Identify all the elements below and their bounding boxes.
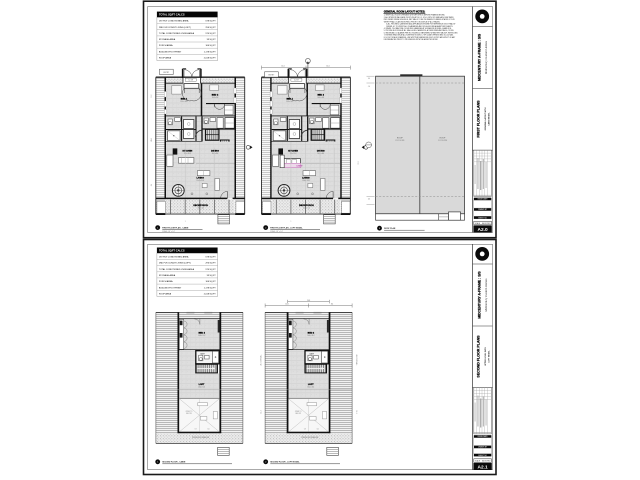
svg-text:BUILDING FOOTPRINT: BUILDING FOOTPRINT <box>159 287 182 289</box>
svg-text:2,018 SQ FT: 2,018 SQ FT <box>204 294 217 296</box>
svg-text:LOFT: LOFT <box>199 384 205 386</box>
svg-text:MIDCENTURY A-FRAME : S/S: MIDCENTURY A-FRAME : S/S <box>478 271 482 319</box>
svg-text:1ST FLR CONDITIONED AREA: 1ST FLR CONDITIONED AREA <box>159 20 189 23</box>
svg-text:KITCHEN: KITCHEN <box>183 150 193 152</box>
svg-text:166 SQ FT: 166 SQ FT <box>206 45 217 47</box>
svg-text:TOTAL CONDITIONED LIVING AREA: TOTAL CONDITIONED LIVING AREA <box>159 32 195 35</box>
svg-text:ROOF: ROOF <box>397 138 404 140</box>
svg-text:10-0 x 8-6: 10-0 x 8-6 <box>212 153 219 155</box>
svg-text:LIVING: LIVING <box>197 178 205 180</box>
svg-text:13-4 x 12-8: 13-4 x 12-8 <box>302 180 309 182</box>
svg-text:1,178 SQ FT: 1,178 SQ FT <box>204 287 217 289</box>
svg-text:DECK/PORCH: DECK/PORCH <box>193 205 208 207</box>
svg-text:ROOF AREA: ROOF AREA <box>159 293 172 296</box>
svg-text:SECOND FLOOR - CABIN: SECOND FLOOR - CABIN <box>162 461 186 464</box>
svg-text:ENTRY: ENTRY <box>163 72 170 74</box>
svg-text:SHEET NO: SHEET NO <box>478 217 487 219</box>
svg-text:14-6: 14-6 <box>281 66 284 68</box>
svg-text:STORAGE AREA: STORAGE AREA <box>159 38 176 41</box>
svg-text:3-6: 3-6 <box>368 78 370 80</box>
svg-text:12-2: 12-2 <box>355 410 357 413</box>
svg-text:FIRST FLOOR PLANS: FIRST FLOOR PLANS <box>477 100 481 138</box>
svg-text:ROOF: ROOF <box>440 138 447 140</box>
svg-text:ROOF AREA: ROOF AREA <box>159 57 172 60</box>
svg-text:974 SQ FT: 974 SQ FT <box>206 269 217 271</box>
svg-text:BED 2: BED 2 <box>317 94 324 96</box>
svg-text:28-0: 28-0 <box>151 138 153 141</box>
svg-text:166 SQ FT: 166 SQ FT <box>206 281 217 283</box>
svg-text:DECK/PORCH: DECK/PORCH <box>299 205 314 207</box>
svg-text:678 SQ FT: 678 SQ FT <box>206 257 217 259</box>
svg-text:12:12 SLOPE: 12:12 SLOPE <box>438 140 447 142</box>
svg-text:22-0 x 5-0: 22-0 x 5-0 <box>197 208 204 210</box>
svg-text:DINING: DINING <box>211 150 219 152</box>
svg-text:2,018 SQ FT: 2,018 SQ FT <box>204 58 217 60</box>
svg-text:11-0 x 10-2: 11-0 x 10-2 <box>180 101 187 103</box>
svg-text:TOTAL SQFT CALCS: TOTAL SQFT CALCS <box>159 249 185 253</box>
svg-text:TOTAL CONDITIONED LIVING AREA: TOTAL CONDITIONED LIVING AREA <box>159 268 195 271</box>
svg-text:PORCH ROOF BELOW: PORCH ROOF BELOW <box>192 437 209 439</box>
svg-text:296 SQ FT: 296 SQ FT <box>206 263 217 265</box>
svg-text:LOFT: LOFT <box>308 384 314 386</box>
svg-text:UPPER LEVEL WITH: UPPER LEVEL WITH <box>485 347 487 366</box>
svg-text:SHEET NO: SHEET NO <box>478 455 487 457</box>
svg-text:CABIN MODEL: CABIN MODEL <box>487 111 490 125</box>
svg-text:MidCentury Custom Homes: MidCentury Custom Homes <box>484 278 488 312</box>
svg-text:678 SQ FT: 678 SQ FT <box>206 21 217 23</box>
svg-text:DINING: DINING <box>317 150 325 152</box>
svg-text:1: 1 <box>290 221 291 223</box>
svg-text:14-6: 14-6 <box>326 66 329 68</box>
svg-text:1: 1 <box>185 221 186 223</box>
svg-text:FIRST FLOOR PLAN - LOFT MODEL: FIRST FLOOR PLAN - LOFT MODEL <box>270 226 303 229</box>
svg-text:1ST FLR CONDITIONED AREA: 1ST FLR CONDITIONED AREA <box>159 256 189 259</box>
svg-text:22-0 x 5-0: 22-0 x 5-0 <box>303 208 310 210</box>
svg-text:A2.1: A2.1 <box>478 464 488 470</box>
svg-text:OH: OH <box>368 86 370 88</box>
svg-text:GENERAL LAYOUT WITH: GENERAL LAYOUT WITH <box>484 107 487 130</box>
svg-text:10-8 x 11-2: 10-8 x 11-2 <box>198 335 205 337</box>
svg-text:12-2: 12-2 <box>261 410 263 413</box>
svg-text:MIDCENTURY A-FRAME : S/S: MIDCENTURY A-FRAME : S/S <box>478 33 482 81</box>
svg-text:BED 1: BED 1 <box>286 99 293 101</box>
svg-text:LOFT MODEL: LOFT MODEL <box>488 350 490 363</box>
svg-text:BELOW: BELOW <box>295 413 301 415</box>
svg-text:12:12 SLOPE: 12:12 SLOPE <box>395 140 404 142</box>
svg-text:BELOW: BELOW <box>186 413 192 415</box>
svg-text:GENERAL ROOM LAYOUT NOTES:: GENERAL ROOM LAYOUT NOTES: <box>384 10 426 13</box>
svg-text:13-6 x 9-4: 13-6 x 9-4 <box>307 387 314 389</box>
svg-text:10-6 x 9-8: 10-6 x 9-8 <box>317 97 324 99</box>
svg-text:7-8: 7-8 <box>194 428 196 430</box>
svg-text:12-6: 12-6 <box>151 94 153 97</box>
svg-text:8-11: 8-11 <box>357 162 359 165</box>
svg-text:2ND FLR CONDIT LIVING (LOFT): 2ND FLR CONDIT LIVING (LOFT) <box>159 263 191 265</box>
svg-text:10-6 x 9-8: 10-6 x 9-8 <box>212 97 219 99</box>
svg-text:A2.0: A2.0 <box>478 227 488 233</box>
svg-text:BATH: BATH <box>310 352 315 355</box>
svg-text:PORCH AREA: PORCH AREA <box>159 44 173 47</box>
svg-text:2ND FLR CONDIT LIVING (LOFT): 2ND FLR CONDIT LIVING (LOFT) <box>159 27 191 29</box>
svg-text:FIRST FLOOR PLAN - CABIN: FIRST FLOOR PLAN - CABIN <box>162 226 189 229</box>
svg-text:10-0 x 8-6: 10-0 x 8-6 <box>317 153 324 155</box>
svg-text:STORAGE AREA: STORAGE AREA <box>159 274 176 277</box>
svg-text:PORCH AREA: PORCH AREA <box>159 280 173 283</box>
svg-text:BED 1: BED 1 <box>181 99 188 101</box>
svg-text:10-8 x 11-2: 10-8 x 11-2 <box>307 335 314 337</box>
svg-text:TOTAL SQFT CALCS: TOTAL SQFT CALCS <box>159 13 185 17</box>
svg-text:MidCentury Custom Homes: MidCentury Custom Homes <box>484 40 488 74</box>
svg-text:13-8: 13-8 <box>307 300 310 302</box>
svg-text:SECOND FLOOR PLANS: SECOND FLOOR PLANS <box>477 335 481 378</box>
svg-text:1,178 SQ FT: 1,178 SQ FT <box>204 51 217 53</box>
svg-text:974 SQ FT: 974 SQ FT <box>206 33 217 35</box>
svg-text:13-6 x 9-4: 13-6 x 9-4 <box>198 387 205 389</box>
svg-text:11-0 x 10-2: 11-0 x 10-2 <box>286 101 293 103</box>
svg-text:OPEN TO: OPEN TO <box>295 411 303 413</box>
svg-text:8-4: 8-4 <box>331 304 333 306</box>
svg-text:ENTRY: ENTRY <box>269 74 276 76</box>
svg-text:296 SQ FT: 296 SQ FT <box>206 27 217 29</box>
svg-text:3-6: 3-6 <box>368 199 370 201</box>
svg-text:PORCH ROOF BELOW: PORCH ROOF BELOW <box>301 437 318 439</box>
svg-text:7-8: 7-8 <box>304 428 306 430</box>
svg-text:BATH: BATH <box>200 352 205 355</box>
svg-text:BED 2: BED 2 <box>212 94 219 96</box>
svg-text:OPEN TO: OPEN TO <box>186 411 194 413</box>
svg-text:BED 2: BED 2 <box>308 332 315 334</box>
svg-text:33 SQ FT: 33 SQ FT <box>207 275 217 277</box>
svg-text:33 SQ FT: 33 SQ FT <box>207 39 217 41</box>
svg-text:10-2: 10-2 <box>285 304 288 306</box>
svg-text:BUILDING FOOTPRINT: BUILDING FOOTPRINT <box>159 51 182 53</box>
svg-text:LNDRY: LNDRY <box>297 166 304 168</box>
svg-text:BED 2: BED 2 <box>198 332 205 334</box>
svg-text:8-0: 8-0 <box>317 428 319 430</box>
svg-text:8-4: 8-4 <box>151 184 153 186</box>
svg-text:KITCHEN: KITCHEN <box>288 150 298 152</box>
svg-text:LIVING: LIVING <box>302 178 310 180</box>
svg-text:ROOF PLAN: ROOF PLAN <box>384 227 396 230</box>
svg-text:13-4 x 12-8: 13-4 x 12-8 <box>197 180 204 182</box>
svg-text:8-0: 8-0 <box>207 428 209 430</box>
svg-text:SECOND FLOOR - LOFT MODEL: SECOND FLOOR - LOFT MODEL <box>270 462 300 464</box>
